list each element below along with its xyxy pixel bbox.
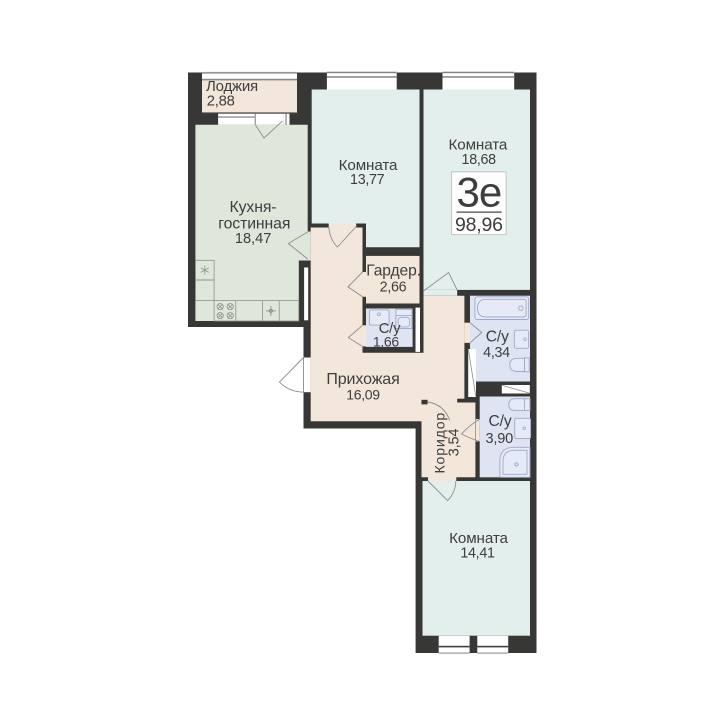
svg-text:С/у: С/у: [486, 329, 509, 346]
svg-text:С/у: С/у: [488, 413, 511, 430]
svg-text:13,77: 13,77: [350, 172, 385, 188]
svg-text:2,66: 2,66: [380, 280, 407, 296]
svg-text:Гардер.: Гардер.: [366, 263, 421, 280]
svg-text:3,90: 3,90: [485, 431, 513, 447]
svg-text:Кухня-: Кухня-: [230, 199, 277, 216]
svg-text:3е: 3е: [457, 168, 502, 215]
svg-text:18,68: 18,68: [462, 152, 497, 168]
svg-text:1,66: 1,66: [373, 333, 400, 349]
svg-text:4,34: 4,34: [483, 345, 510, 361]
svg-text:Лоджия: Лоджия: [206, 78, 258, 95]
svg-text:16,09: 16,09: [346, 387, 380, 403]
svg-text:3,54: 3,54: [447, 429, 463, 457]
svg-text:2,88: 2,88: [207, 93, 235, 109]
svg-text:Прихожая: Прихожая: [326, 371, 399, 388]
svg-text:14,41: 14,41: [460, 545, 495, 561]
svg-text:98,96: 98,96: [455, 214, 503, 236]
svg-text:18,47: 18,47: [235, 231, 272, 247]
